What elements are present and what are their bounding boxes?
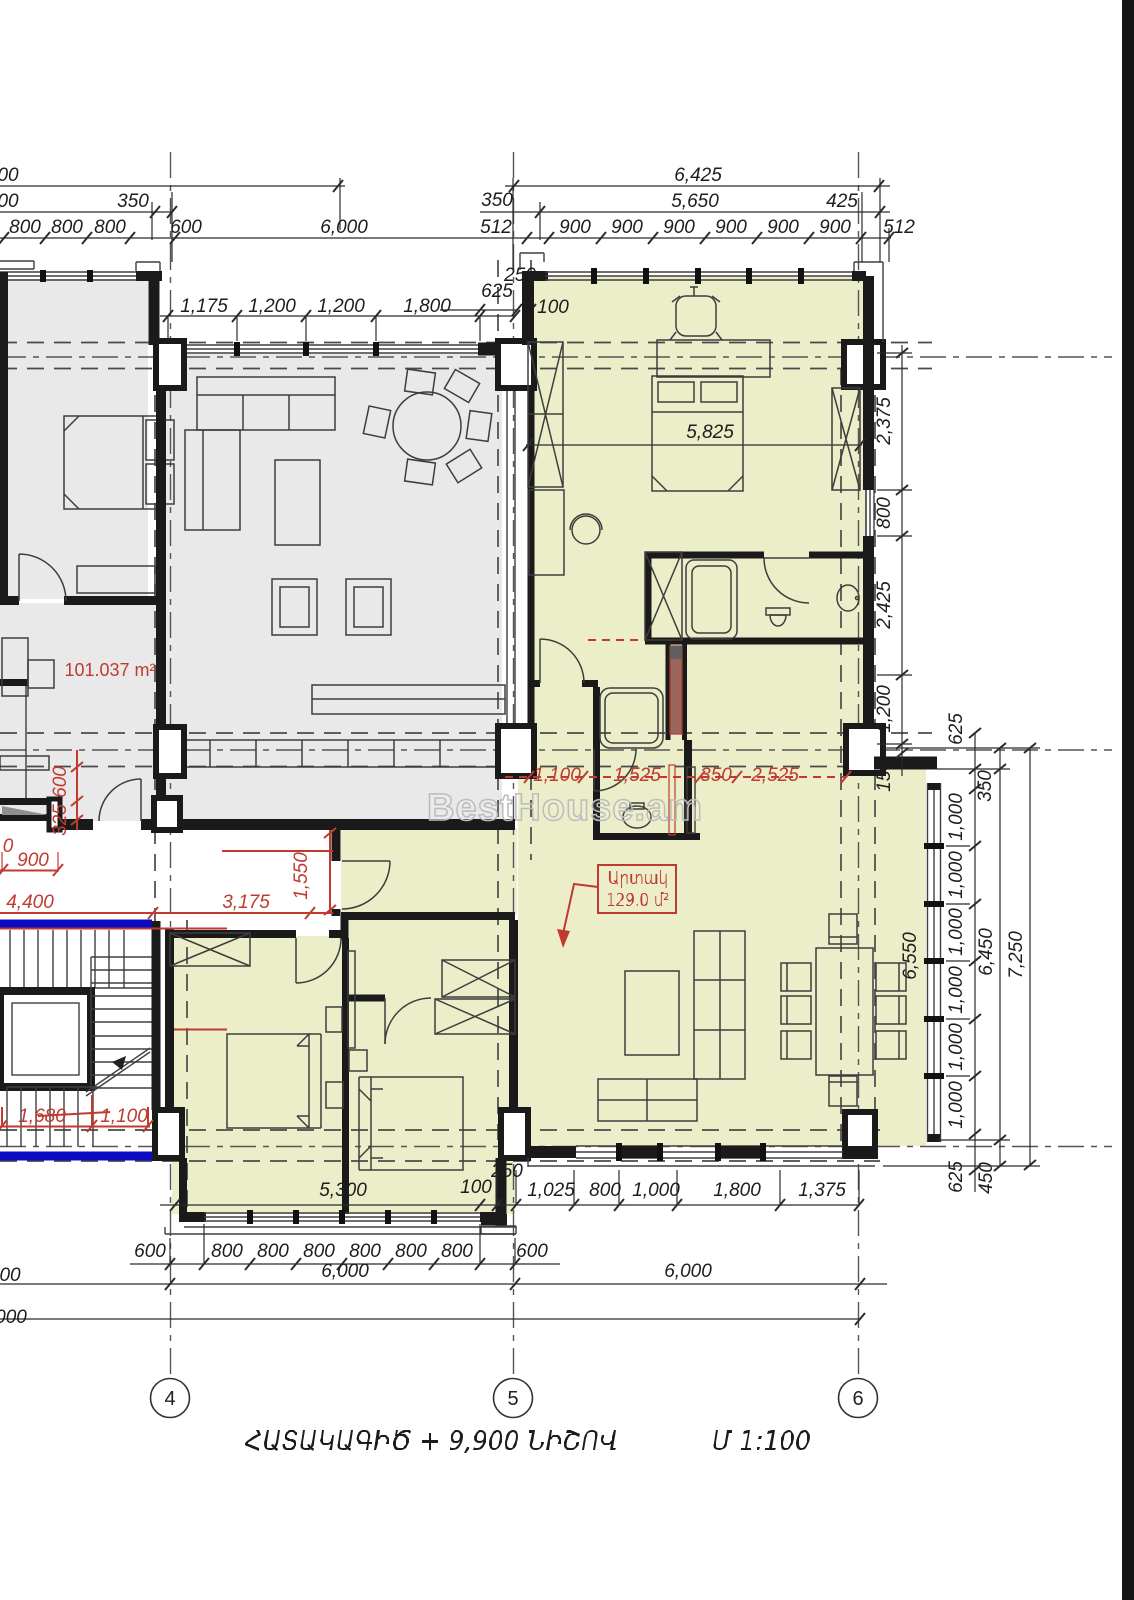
svg-text:150: 150 [874, 760, 895, 792]
svg-text:800: 800 [441, 1241, 473, 1262]
svg-text:6,000: 6,000 [664, 1261, 712, 1282]
svg-text:00: 00 [0, 191, 19, 212]
svg-text:900: 900 [715, 217, 747, 238]
svg-text:BestHouse.am: BestHouse.am [427, 787, 703, 829]
svg-text:600: 600 [134, 1241, 166, 1262]
svg-text:1,200: 1,200 [317, 296, 365, 317]
svg-text:000: 000 [0, 1307, 27, 1328]
svg-text:900: 900 [17, 850, 49, 871]
svg-text:1,000: 1,000 [946, 1081, 967, 1129]
svg-text:1,100: 1,100 [100, 1106, 148, 1127]
svg-text:250: 250 [490, 1161, 523, 1182]
svg-text:325: 325 [50, 804, 71, 836]
svg-text:800: 800 [349, 1241, 381, 1262]
svg-text:800: 800 [589, 1180, 621, 1201]
svg-text:6,000: 6,000 [320, 217, 368, 238]
svg-text:7,250: 7,250 [1006, 931, 1027, 979]
svg-text:100: 100 [460, 1177, 492, 1198]
svg-text:900: 900 [611, 217, 643, 238]
svg-text:1,000: 1,000 [946, 908, 967, 956]
svg-text:350: 350 [481, 190, 513, 211]
svg-text:600: 600 [50, 766, 71, 798]
svg-text:625: 625 [481, 281, 513, 302]
svg-text:2,425: 2,425 [874, 581, 895, 630]
svg-text:1,100: 1,100 [533, 765, 581, 786]
svg-text:0: 0 [3, 836, 14, 857]
svg-text:512: 512 [480, 217, 512, 238]
svg-text:1,800: 1,800 [713, 1180, 761, 1201]
svg-text:00: 00 [0, 1265, 21, 1286]
svg-text:1,800: 1,800 [403, 296, 451, 317]
svg-text:600: 600 [170, 217, 202, 238]
svg-text:350: 350 [117, 191, 149, 212]
svg-text:101.037 m²: 101.037 m² [64, 660, 155, 680]
svg-text:800: 800 [94, 217, 126, 238]
svg-text:900: 900 [819, 217, 851, 238]
svg-text:5: 5 [507, 1388, 518, 1410]
svg-text:2,375: 2,375 [874, 397, 895, 446]
svg-text:900: 900 [559, 217, 591, 238]
svg-text:800: 800 [51, 217, 83, 238]
svg-text:800: 800 [874, 497, 895, 529]
svg-text:5,650: 5,650 [671, 191, 719, 212]
svg-text:100: 100 [537, 297, 569, 318]
svg-text:1,025: 1,025 [527, 1180, 575, 1201]
svg-text:1,000: 1,000 [946, 793, 967, 841]
svg-text:350: 350 [975, 770, 996, 802]
svg-text:5,825: 5,825 [686, 422, 734, 443]
svg-text:600: 600 [516, 1241, 548, 1262]
svg-text:1,550: 1,550 [291, 852, 312, 900]
svg-text:1,200: 1,200 [248, 296, 296, 317]
svg-text:425: 425 [826, 191, 858, 212]
svg-text:1,000: 1,000 [946, 1023, 967, 1071]
svg-text:800: 800 [395, 1241, 427, 1262]
svg-text:1,200: 1,200 [874, 685, 895, 733]
svg-text:5,300: 5,300 [319, 1180, 367, 1201]
svg-text:6,550: 6,550 [900, 932, 921, 980]
svg-text:1,000: 1,000 [632, 1180, 680, 1201]
svg-text:800: 800 [257, 1241, 289, 1262]
svg-text:1,175: 1,175 [180, 296, 228, 317]
svg-text:6,000: 6,000 [321, 1261, 369, 1282]
svg-text:1,000: 1,000 [946, 851, 967, 899]
svg-text:1,525: 1,525 [613, 765, 661, 786]
svg-text:625: 625 [946, 713, 967, 745]
svg-text:00: 00 [0, 165, 19, 186]
svg-text:6,450: 6,450 [976, 928, 997, 976]
svg-text:800: 800 [211, 1241, 243, 1262]
svg-text:4: 4 [164, 1388, 175, 1410]
svg-text:2,525: 2,525 [750, 765, 799, 786]
svg-text:900: 900 [663, 217, 695, 238]
svg-text:1,000: 1,000 [946, 966, 967, 1014]
svg-text:4,400: 4,400 [6, 892, 54, 913]
svg-text:512: 512 [883, 217, 915, 238]
svg-text:900: 900 [767, 217, 799, 238]
svg-text:350: 350 [700, 765, 732, 786]
svg-text:6: 6 [852, 1388, 863, 1410]
svg-text:3,175: 3,175 [222, 892, 270, 913]
svg-text:800: 800 [9, 217, 41, 238]
svg-text:800: 800 [303, 1241, 335, 1262]
svg-text:6,425: 6,425 [674, 165, 722, 186]
svg-text:1,375: 1,375 [798, 1180, 846, 1201]
